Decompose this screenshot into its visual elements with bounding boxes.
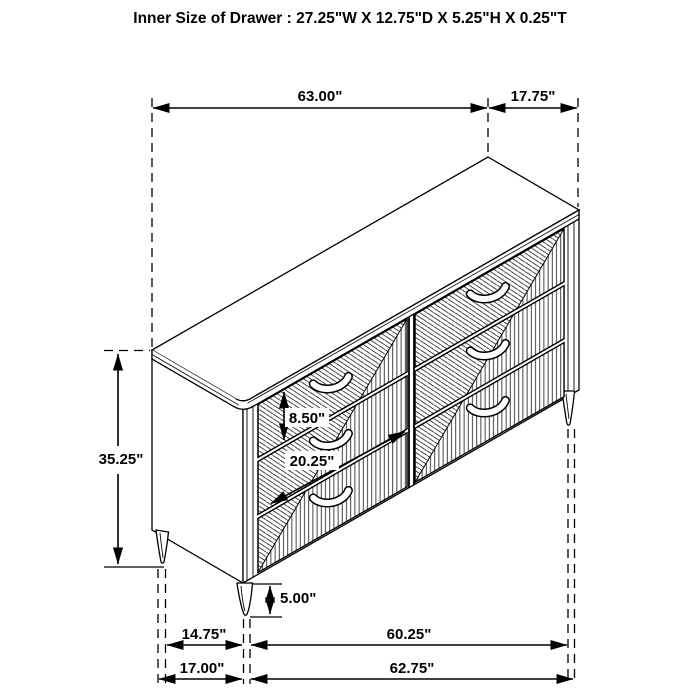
dim-label-drawer-height: 8.50" — [289, 410, 325, 427]
diagram-canvas: Inner Size of Drawer : 27.25"W X 12.75"D… — [0, 0, 700, 700]
dim-label-drawer-width: 20.25" — [290, 453, 335, 470]
dim-label-width-top: 63.00" — [298, 88, 343, 105]
dim-label-leg-span-width: 60.25" — [387, 626, 432, 643]
dresser-drawing — [152, 157, 579, 615]
furniture-dimension-diagram: Inner Size of Drawer : 27.25"W X 12.75"D… — [0, 0, 700, 700]
dim-label-base-width: 62.75" — [390, 660, 435, 677]
dim-label-depth-top: 17.75" — [511, 88, 556, 105]
dim-label-leg-height: 5.00" — [280, 590, 316, 607]
back-left-leg — [156, 530, 169, 563]
dim-label-base-depth: 17.00" — [180, 660, 225, 677]
dim-label-overall-height: 35.25" — [99, 451, 144, 468]
dim-label-leg-span-depth: 14.75" — [182, 626, 227, 643]
diagram-title: Inner Size of Drawer : 27.25"W X 12.75"D… — [133, 10, 567, 27]
